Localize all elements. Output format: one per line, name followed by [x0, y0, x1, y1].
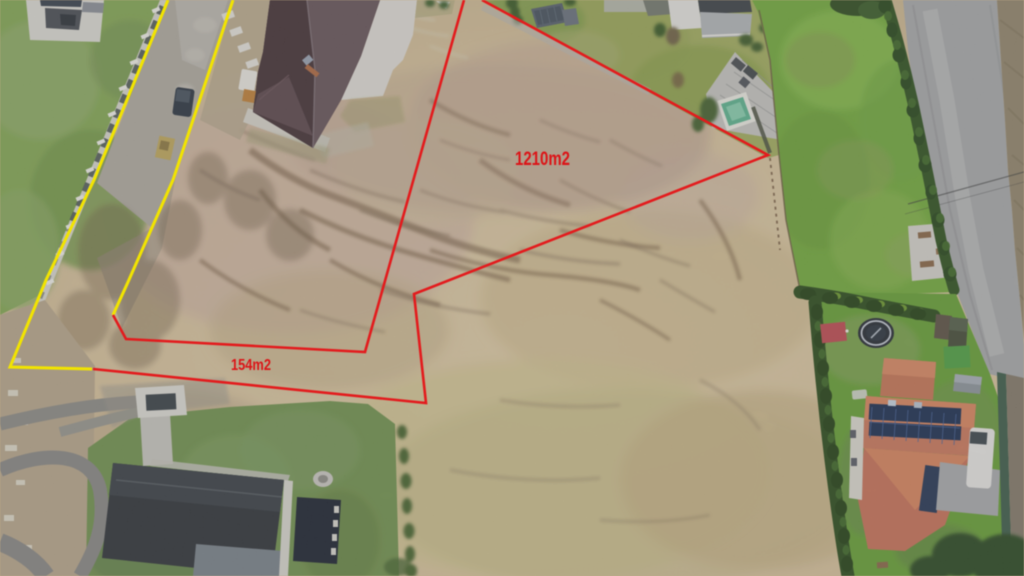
svg-text:1210m2: 1210m2 [515, 149, 570, 170]
svg-text:154m2: 154m2 [231, 357, 271, 374]
